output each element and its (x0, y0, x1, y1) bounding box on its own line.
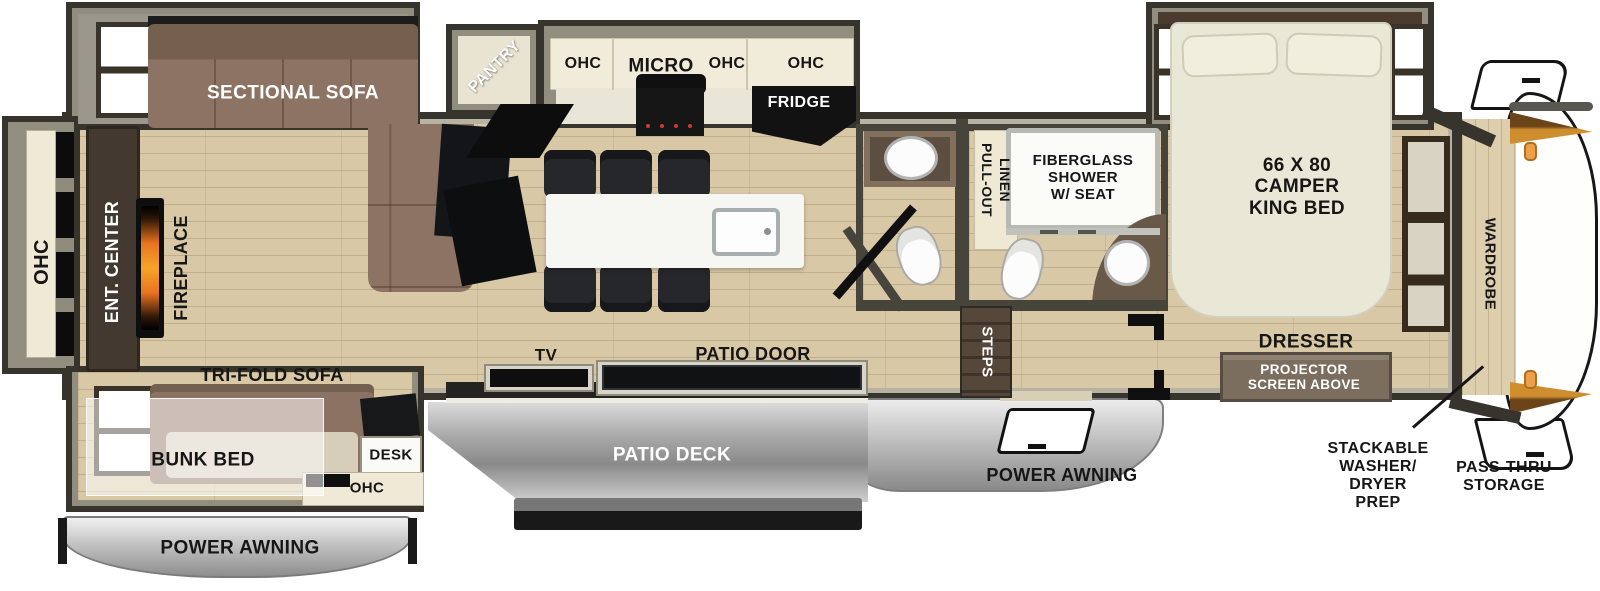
sectional-sofa-label: SECTIONAL SOFA (207, 82, 379, 103)
cabinet-seam (746, 38, 748, 90)
hall-door-frame (1154, 370, 1164, 400)
hitch-flap-bottom-latch (1526, 452, 1544, 457)
pull-out-label: PULL-OUT (978, 143, 994, 217)
sofa-slide-window (96, 22, 154, 118)
entry-door (996, 408, 1095, 454)
tv-label: TV (535, 345, 558, 364)
linen-label: LINEN (996, 158, 1012, 202)
fireplace-flame-icon (141, 206, 159, 330)
desk-label: DESK (369, 448, 412, 465)
deck-bottom-rail (514, 498, 862, 530)
marker-light (1524, 370, 1537, 389)
cabinet-seam (612, 38, 614, 90)
patio-deck-label: PATIO DECK (613, 444, 731, 465)
ent-center-label: ENT. CENTER (102, 201, 122, 323)
burner (688, 124, 692, 128)
awning-end-cap (58, 518, 67, 564)
ohc-kitchen-left-label: OHC (565, 55, 602, 73)
rv-floorplan: OHC ENT. CENTER FIREPLACE SECTIONAL SOFA… (0, 0, 1600, 591)
sectional-sofa (148, 24, 418, 128)
desk-chair (360, 393, 420, 441)
tv (490, 369, 588, 387)
half-bath-sink (884, 136, 938, 180)
fridge-label: FRIDGE (768, 94, 831, 112)
dining-chair (600, 150, 652, 198)
wardrobe-label: WARDROBE (1481, 218, 1498, 310)
tri-fold-sofa-label: TRI-FOLD SOFA (200, 365, 343, 385)
burner (660, 124, 664, 128)
dining-chair (600, 264, 652, 312)
main-bath-sink (1104, 240, 1150, 286)
shower-door-pull (1040, 230, 1058, 234)
bedroom-rear-window (1402, 136, 1450, 332)
burner (646, 124, 650, 128)
dining-chair (658, 264, 710, 312)
dining-chair (544, 264, 596, 312)
ohc-rear-label: OHC (31, 239, 53, 285)
king-bed-label: 66 X 80 CAMPER KING BED (1249, 155, 1345, 219)
rear-cabinet-openings (56, 132, 74, 356)
sink-drain (764, 228, 771, 235)
washer-dryer-prep-label: STACKABLE WASHER/ DRYER PREP (1327, 440, 1428, 512)
front-cap-rim (1509, 102, 1593, 111)
ohc-kitchen-right-label: OHC (788, 55, 825, 73)
bunk-bed-overlay (86, 398, 324, 496)
shower-door-pull (1078, 230, 1096, 234)
marker-light (1524, 142, 1537, 161)
dining-chair (544, 150, 596, 198)
hall-door-frame (1154, 314, 1164, 340)
awning-end-cap (408, 518, 417, 564)
patio-door-label: PATIO DOOR (695, 344, 810, 364)
pillow (1285, 32, 1382, 77)
dining-chair (658, 150, 710, 198)
fireplace-label: FIREPLACE (171, 215, 191, 321)
steps-label: STEPS (978, 326, 995, 377)
entry-door-opening (1000, 391, 1092, 401)
pillow (1181, 32, 1278, 77)
patio-door-glass (602, 365, 862, 390)
bedroom-right-wall (1452, 112, 1462, 402)
stove (636, 88, 704, 136)
hitch-flap-top-latch (1522, 78, 1540, 83)
entry-door-handle (1028, 444, 1046, 449)
bedroom-window-right (1390, 24, 1428, 120)
pass-thru-storage-label: PASS-THRU STORAGE (1456, 459, 1552, 495)
projector-screen-label: PROJECTOR SCREEN ABOVE (1248, 362, 1360, 392)
power-awning-right-label: POWER AWNING (986, 465, 1137, 485)
power-awning-left-label: POWER AWNING (160, 537, 319, 558)
burner (674, 124, 678, 128)
ohc-bunk-label: OHC (350, 481, 385, 498)
dresser-label: DRESSER (1259, 331, 1354, 352)
ohc-kitchen-mid-label: OHC (709, 55, 746, 73)
bunk-bed-label: BUNK BED (151, 449, 254, 470)
micro-label: MICRO (628, 55, 693, 76)
deck-threshold (446, 398, 868, 403)
kitchen-counter-right (704, 88, 756, 124)
shower-label: FIBERGLASS SHOWER W/ SEAT (1033, 153, 1134, 203)
